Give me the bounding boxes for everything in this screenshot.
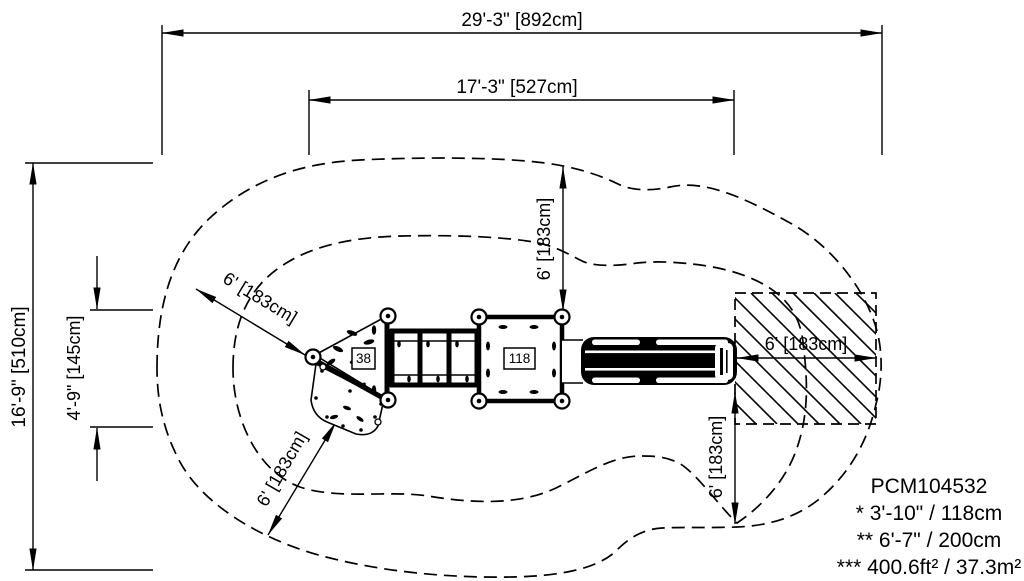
slide-side-cutout xyxy=(592,378,640,384)
dimension-deck-depth: 4'-9" [145cm] xyxy=(64,256,153,481)
deck-fitting xyxy=(320,364,326,370)
slide-exit-detail xyxy=(726,350,728,373)
drawing-svg: 29'-3" [892cm] 17'-3" [527cm] 16'-9" [51… xyxy=(0,0,1024,581)
post xyxy=(555,394,570,409)
playground-plan-view-drawing: 29'-3" [892cm] 17'-3" [527cm] 16'-9" [51… xyxy=(0,0,1024,581)
slide xyxy=(562,337,737,385)
model-number: PCM104532 xyxy=(871,475,988,498)
slide-exit-detail xyxy=(720,348,723,375)
dimension-label: 6' [183cm] xyxy=(534,198,554,280)
dimension-structure-length: 17'-3" [527cm] xyxy=(309,77,734,155)
bridge-bolts xyxy=(397,341,469,383)
slide-rail-line xyxy=(585,368,716,371)
dimension-clearance-upper-left: 6' [183cm] xyxy=(196,268,305,355)
footnote-fall-height: * 3'-10" / 118cm xyxy=(856,502,1002,525)
dimension-label: 29'-3" [892cm] xyxy=(461,10,582,31)
bridge-climber xyxy=(390,329,479,387)
dimension-label: 17'-3" [527cm] xyxy=(456,77,577,98)
dimension-clearance-lower-left: 6' [183cm] xyxy=(253,422,336,535)
dimension-clearance-top-center: 6' [183cm] xyxy=(534,167,563,311)
dimension-label: 6' [183cm] xyxy=(706,416,726,498)
slide-exit-lip xyxy=(715,343,733,380)
post xyxy=(381,309,396,324)
post xyxy=(472,310,487,325)
deck-number: 38 xyxy=(356,351,371,366)
dimension-label: 16'-9" [510cm] xyxy=(9,306,30,427)
slide-rail-line xyxy=(585,351,716,354)
footnote-deck-height: ** 6'-7" / 200cm xyxy=(857,529,1002,552)
dimension-clearance-lower-right: 6' [183cm] xyxy=(706,392,735,524)
dimension-label: 4'-9" [145cm] xyxy=(64,316,84,421)
footnote-use-zone-area: *** 400.6ft² / 37.3m² xyxy=(837,556,1021,579)
dimension-label: 6' [183cm] xyxy=(253,428,312,509)
square-deck: 118 xyxy=(479,317,562,401)
title-block: PCM104532 * 3'-10" / 118cm ** 6'-7" / 20… xyxy=(837,475,1021,579)
dimension-label: 6' [183cm] xyxy=(765,334,847,354)
post xyxy=(555,310,570,325)
slide-entry xyxy=(562,340,583,383)
post xyxy=(381,393,396,408)
deck-fitting xyxy=(375,419,381,425)
play-structure: 38 xyxy=(306,309,738,435)
post xyxy=(306,350,321,365)
deck-number: 118 xyxy=(509,351,531,366)
dimension-label: 6' [183cm] xyxy=(220,268,301,328)
slide-side-cutout xyxy=(592,340,640,346)
post xyxy=(472,394,487,409)
